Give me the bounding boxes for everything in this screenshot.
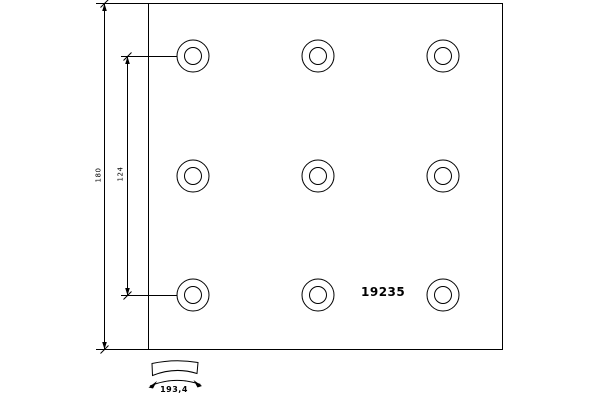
hole-inner-circle [435,287,452,304]
hole-outer-circle [427,40,459,72]
dimension-arrowheads [102,4,202,389]
hole-outer-circle [302,160,334,192]
dim-arc-width-label: 193,4 [160,386,188,394]
hole-inner-circle [435,48,452,65]
arc-section-symbol [150,361,201,386]
hole-outer-circle [177,279,209,311]
hole-grid [177,40,459,311]
hole-outer-circle [427,160,459,192]
hole-outer-circle [302,279,334,311]
hole-inner-circle [310,168,327,185]
brake-lining-drawing: 180 124 19235 193,4 [0,0,600,400]
hole-inner-circle [310,287,327,304]
hole-inner-circle [185,287,202,304]
hole-outer-circle [427,279,459,311]
part-number: 19235 [361,286,405,298]
technical-drawing-svg [0,0,600,400]
hole-inner-circle [185,168,202,185]
hole-outer-circle [302,40,334,72]
dim-height-label: 180 [96,168,103,183]
hole-outer-circle [177,40,209,72]
dimension-line-hole-spacing [124,53,132,300]
hole-inner-circle [310,48,327,65]
hole-outer-circle [177,160,209,192]
extension-lines [96,4,177,350]
dim-hole-spacing-label: 124 [118,167,125,182]
hole-inner-circle [435,168,452,185]
hole-inner-circle [185,48,202,65]
